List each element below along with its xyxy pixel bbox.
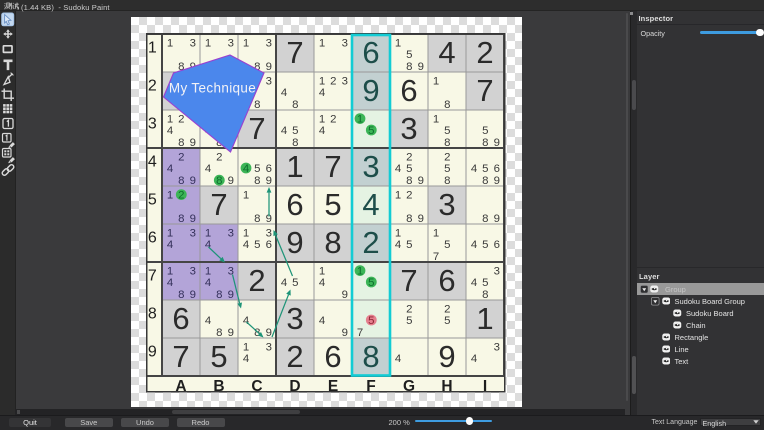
svg-text:7: 7	[400, 263, 417, 298]
svg-text:9: 9	[266, 61, 272, 73]
svg-text:6: 6	[266, 163, 272, 175]
svg-text:1: 1	[395, 228, 401, 240]
svg-text:4: 4	[395, 163, 401, 175]
svg-text:6: 6	[438, 263, 455, 298]
svg-text:1: 1	[395, 190, 401, 202]
svg-text:9: 9	[190, 289, 196, 301]
svg-text:1: 1	[167, 190, 173, 202]
svg-text:8: 8	[216, 175, 222, 187]
svg-text:1: 1	[319, 266, 325, 278]
svg-text:1: 1	[148, 39, 157, 56]
svg-text:2: 2	[406, 190, 412, 202]
svg-text:4: 4	[243, 163, 249, 175]
svg-text:5: 5	[148, 191, 157, 208]
svg-text:3: 3	[362, 149, 379, 184]
svg-text:4: 4	[319, 125, 325, 137]
svg-text:1: 1	[395, 38, 401, 50]
svg-text:3: 3	[342, 76, 348, 88]
svg-text:4: 4	[167, 239, 173, 251]
svg-text:1: 1	[476, 301, 493, 336]
svg-text:F: F	[366, 378, 375, 395]
svg-text:7: 7	[324, 149, 341, 184]
svg-text:6: 6	[362, 35, 379, 70]
svg-text:2: 2	[248, 263, 265, 298]
svg-text:5: 5	[210, 339, 227, 374]
svg-text:8: 8	[482, 289, 488, 301]
svg-text:9: 9	[228, 289, 234, 301]
svg-text:1: 1	[243, 342, 249, 354]
svg-text:3: 3	[286, 301, 303, 336]
svg-text:9: 9	[494, 213, 500, 225]
svg-text:6: 6	[494, 163, 500, 175]
svg-text:2: 2	[330, 114, 336, 126]
svg-text:4: 4	[205, 163, 211, 175]
svg-text:5: 5	[406, 239, 412, 251]
svg-text:4: 4	[167, 277, 173, 289]
svg-text:4: 4	[243, 239, 249, 251]
svg-text:1: 1	[243, 38, 249, 50]
svg-text:3: 3	[190, 228, 196, 240]
svg-text:5: 5	[406, 49, 412, 61]
svg-text:A: A	[175, 378, 186, 395]
svg-text:8: 8	[178, 137, 184, 149]
svg-text:9: 9	[190, 213, 196, 225]
svg-text:3: 3	[438, 187, 455, 222]
svg-text:8: 8	[482, 175, 488, 187]
svg-text:4: 4	[319, 277, 325, 289]
svg-text:8: 8	[216, 289, 222, 301]
svg-text:2: 2	[476, 35, 493, 70]
svg-text:3: 3	[190, 38, 196, 50]
svg-text:1: 1	[167, 266, 173, 278]
svg-text:5: 5	[324, 187, 341, 222]
svg-text:1: 1	[205, 228, 211, 240]
svg-text:4: 4	[319, 315, 325, 327]
svg-text:8: 8	[444, 137, 450, 149]
svg-text:3: 3	[266, 76, 272, 88]
svg-text:3: 3	[190, 266, 196, 278]
svg-text:7: 7	[248, 111, 265, 146]
svg-text:9: 9	[342, 289, 348, 301]
svg-text:1: 1	[433, 114, 439, 126]
svg-text:4: 4	[243, 315, 249, 327]
svg-text:8: 8	[482, 213, 488, 225]
svg-text:6: 6	[148, 229, 157, 246]
svg-text:5: 5	[254, 239, 260, 251]
svg-text:2: 2	[406, 152, 412, 164]
svg-text:1: 1	[319, 114, 325, 126]
svg-text:8: 8	[178, 175, 184, 187]
svg-text:8: 8	[254, 175, 260, 187]
svg-text:5: 5	[406, 315, 412, 327]
svg-text:4: 4	[205, 277, 211, 289]
svg-text:1: 1	[167, 38, 173, 50]
svg-text:3: 3	[148, 115, 157, 132]
svg-text:1: 1	[205, 266, 211, 278]
svg-text:7: 7	[433, 251, 439, 263]
svg-text:1: 1	[433, 76, 439, 88]
svg-text:C: C	[251, 378, 262, 395]
svg-text:9: 9	[148, 343, 157, 360]
svg-text:5: 5	[406, 163, 412, 175]
svg-text:5: 5	[254, 163, 260, 175]
svg-text:9: 9	[190, 137, 196, 149]
svg-text:2: 2	[178, 152, 184, 164]
svg-text:3: 3	[228, 228, 234, 240]
svg-text:4: 4	[362, 187, 379, 222]
svg-text:4: 4	[319, 87, 325, 99]
svg-text:9: 9	[342, 327, 348, 339]
svg-text:6: 6	[266, 239, 272, 251]
svg-text:5: 5	[482, 277, 488, 289]
svg-text:2: 2	[216, 152, 222, 164]
svg-text:5: 5	[292, 125, 298, 137]
svg-text:1: 1	[243, 190, 249, 202]
svg-text:6: 6	[324, 339, 341, 374]
svg-text:1: 1	[243, 228, 249, 240]
svg-text:8: 8	[362, 339, 379, 374]
svg-text:1: 1	[319, 38, 325, 50]
svg-text:5: 5	[292, 277, 298, 289]
svg-text:9: 9	[286, 225, 303, 260]
svg-text:D: D	[289, 378, 300, 395]
svg-text:7: 7	[210, 187, 227, 222]
svg-text:5: 5	[482, 125, 488, 137]
svg-text:8: 8	[254, 213, 260, 225]
svg-text:2: 2	[444, 304, 450, 316]
svg-text:4: 4	[438, 35, 455, 70]
svg-text:1: 1	[167, 228, 173, 240]
svg-text:4: 4	[471, 353, 477, 365]
svg-text:3: 3	[400, 111, 417, 146]
svg-text:H: H	[441, 378, 452, 395]
svg-text:9: 9	[494, 137, 500, 149]
svg-text:9: 9	[266, 175, 272, 187]
svg-text:9: 9	[438, 339, 455, 374]
svg-text:8: 8	[406, 175, 412, 187]
svg-text:G: G	[403, 378, 415, 395]
svg-text:6: 6	[400, 73, 417, 108]
svg-text:5: 5	[444, 239, 450, 251]
svg-text:3: 3	[228, 38, 234, 50]
svg-text:7: 7	[357, 327, 363, 339]
svg-text:4: 4	[395, 239, 401, 251]
svg-text:5: 5	[482, 239, 488, 251]
svg-text:4: 4	[205, 315, 211, 327]
svg-text:4: 4	[281, 87, 287, 99]
svg-text:1: 1	[357, 114, 363, 126]
svg-text:4: 4	[243, 353, 249, 365]
svg-text:I: I	[483, 378, 487, 395]
svg-text:8: 8	[292, 99, 298, 111]
svg-text:2: 2	[178, 114, 184, 126]
svg-text:8: 8	[178, 213, 184, 225]
svg-text:1: 1	[433, 228, 439, 240]
svg-text:4: 4	[471, 239, 477, 251]
svg-text:My Technique: My Technique	[169, 80, 256, 95]
svg-text:4: 4	[281, 125, 287, 137]
svg-text:5: 5	[368, 315, 374, 327]
svg-text:8: 8	[444, 99, 450, 111]
svg-text:7: 7	[172, 339, 189, 374]
svg-text:4: 4	[471, 277, 477, 289]
svg-text:E: E	[328, 378, 338, 395]
svg-text:1: 1	[286, 149, 303, 184]
svg-text:5: 5	[482, 163, 488, 175]
svg-text:4: 4	[281, 277, 287, 289]
svg-text:3: 3	[266, 38, 272, 50]
svg-text:9: 9	[418, 213, 424, 225]
svg-text:2: 2	[178, 190, 184, 202]
svg-text:5: 5	[368, 125, 374, 137]
svg-text:5: 5	[444, 163, 450, 175]
svg-text:9: 9	[418, 175, 424, 187]
svg-text:3: 3	[266, 342, 272, 354]
svg-text:9: 9	[494, 175, 500, 187]
svg-text:8: 8	[406, 61, 412, 73]
svg-text:8: 8	[216, 327, 222, 339]
svg-text:1: 1	[205, 38, 211, 50]
svg-text:8: 8	[148, 305, 157, 322]
svg-text:9: 9	[266, 327, 272, 339]
svg-text:4: 4	[148, 153, 157, 170]
svg-text:6: 6	[172, 301, 189, 336]
svg-text:7: 7	[286, 35, 303, 70]
svg-text:9: 9	[418, 61, 424, 73]
svg-text:8: 8	[178, 289, 184, 301]
svg-text:2: 2	[148, 77, 157, 94]
svg-text:8: 8	[444, 175, 450, 187]
svg-text:8: 8	[292, 137, 298, 149]
svg-text:4: 4	[167, 163, 173, 175]
svg-text:1: 1	[357, 266, 363, 278]
svg-text:7: 7	[476, 73, 493, 108]
svg-text:8: 8	[406, 213, 412, 225]
svg-text:6: 6	[286, 187, 303, 222]
svg-text:8: 8	[482, 137, 488, 149]
svg-text:9: 9	[190, 175, 196, 187]
svg-text:1: 1	[167, 114, 173, 126]
svg-text:5: 5	[444, 125, 450, 137]
svg-text:4: 4	[395, 353, 401, 365]
svg-text:2: 2	[444, 152, 450, 164]
svg-text:5: 5	[444, 315, 450, 327]
svg-text:7: 7	[148, 267, 157, 284]
svg-text:4: 4	[471, 163, 477, 175]
svg-text:3: 3	[494, 266, 500, 278]
svg-text:6: 6	[494, 239, 500, 251]
svg-text:2: 2	[362, 225, 379, 260]
svg-text:1: 1	[319, 76, 325, 88]
svg-text:3: 3	[266, 228, 272, 240]
svg-text:3: 3	[494, 342, 500, 354]
svg-text:9: 9	[228, 327, 234, 339]
svg-text:2: 2	[286, 339, 303, 374]
svg-text:9: 9	[362, 73, 379, 108]
svg-text:2: 2	[406, 304, 412, 316]
svg-text:8: 8	[324, 225, 341, 260]
svg-text:3: 3	[342, 38, 348, 50]
svg-text:5: 5	[368, 277, 374, 289]
svg-text:8: 8	[254, 99, 260, 111]
svg-text:4: 4	[167, 125, 173, 137]
svg-text:B: B	[213, 378, 224, 395]
svg-text:2: 2	[330, 76, 336, 88]
svg-text:9: 9	[228, 175, 234, 187]
